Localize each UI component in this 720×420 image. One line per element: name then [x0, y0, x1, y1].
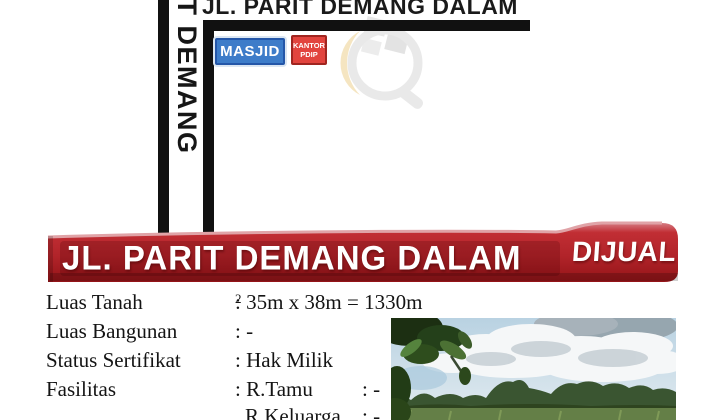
vertical-road-label: PARIT DEMANG — [172, 0, 202, 190]
masjid-label: MASJID — [220, 43, 280, 60]
kantor-label-line1: KANTOR — [293, 41, 325, 50]
detail-label: Luas Tanah — [46, 290, 143, 315]
detail-label: Luas Bangunan — [46, 319, 177, 344]
detail-row-luas-tanah: Luas Tanah : 35m x 38m = 1330m2 — [0, 290, 720, 317]
horizontal-road-bar — [203, 20, 530, 31]
flyer-canvas: JL. PARIT DEMANG DALAM PARIT DEMANG MASJ… — [0, 0, 720, 420]
land-photo — [391, 318, 676, 420]
kantor-label-line2: PDIP — [300, 50, 318, 59]
banner-street-label: JL. PARIT DEMANG DALAM — [62, 238, 522, 278]
detail-value: : Hak Milik — [235, 348, 333, 373]
vertical-road-line-left — [158, 0, 169, 240]
masjid-box: MASJID — [215, 38, 285, 65]
detail-value: R.Keluarga — [245, 404, 341, 420]
detail-value: : - — [235, 319, 253, 344]
detail-value: : 35m x 38m = 1330m2 — [235, 290, 242, 315]
detail-label: Status Sertifikat — [46, 348, 181, 373]
vertical-road-line-right — [203, 20, 214, 238]
map-road-title: JL. PARIT DEMANG DALAM — [190, 0, 530, 20]
detail-subvalue: : - — [362, 404, 380, 420]
kantor-pdip-box: KANTOR PDIP — [291, 35, 327, 65]
banner-status-label: DIJUAL — [571, 236, 677, 268]
detail-value: : R.Tamu — [235, 377, 313, 402]
detail-subvalue: : - — [362, 377, 380, 402]
land-photo-image — [391, 318, 676, 420]
detail-label: Fasilitas — [46, 377, 116, 402]
